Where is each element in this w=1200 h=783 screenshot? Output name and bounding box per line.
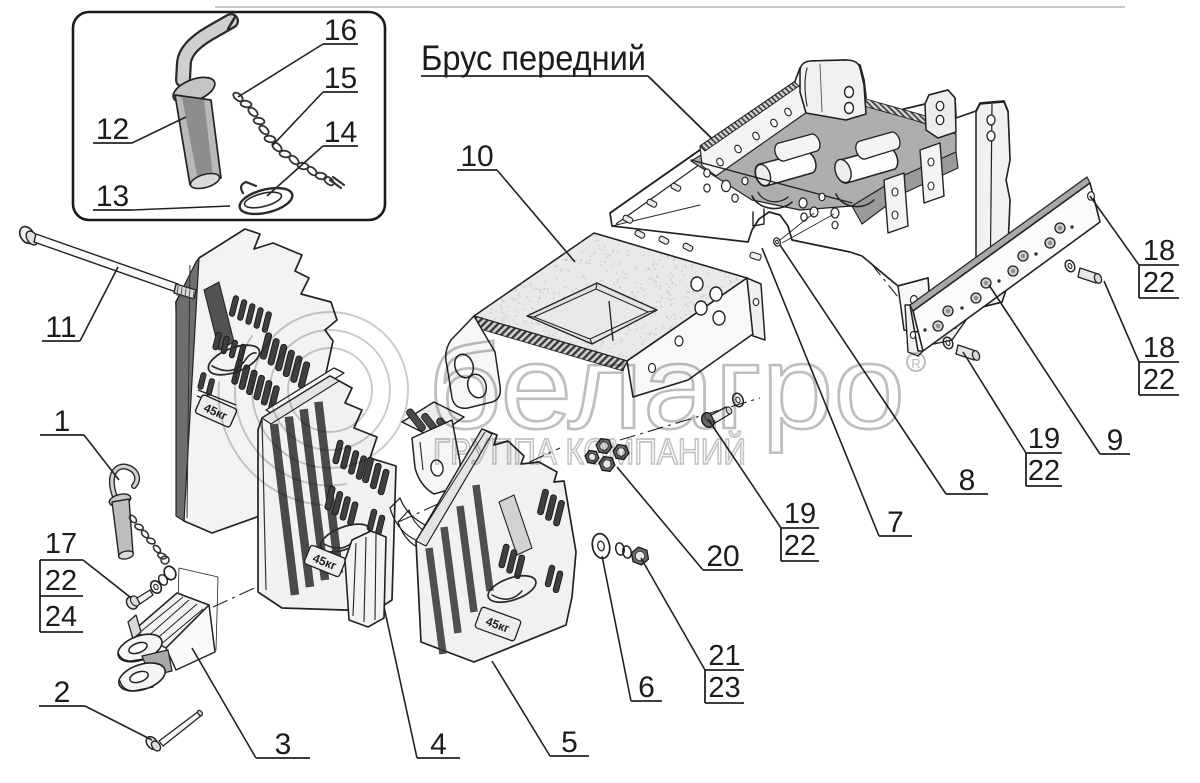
svg-text:23: 23 xyxy=(708,672,740,704)
svg-text:R: R xyxy=(911,356,920,371)
svg-text:19: 19 xyxy=(1028,423,1060,455)
svg-text:ГРУППА КОМПАНИЙ: ГРУППА КОМПАНИЙ xyxy=(433,430,746,472)
svg-text:3: 3 xyxy=(275,728,292,761)
svg-text:16: 16 xyxy=(324,14,357,47)
svg-text:Брус передний: Брус передний xyxy=(421,39,646,78)
svg-text:1: 1 xyxy=(54,405,71,438)
svg-text:15: 15 xyxy=(324,62,357,95)
svg-text:22: 22 xyxy=(784,530,816,562)
svg-text:22: 22 xyxy=(1028,455,1060,487)
svg-text:5: 5 xyxy=(561,726,578,759)
svg-text:14: 14 xyxy=(324,116,357,149)
svg-text:11: 11 xyxy=(45,311,76,344)
svg-text:6: 6 xyxy=(638,671,655,704)
svg-text:22: 22 xyxy=(45,565,77,597)
svg-text:2: 2 xyxy=(54,676,71,709)
svg-text:21: 21 xyxy=(708,640,740,672)
svg-text:12: 12 xyxy=(96,113,129,146)
svg-text:18: 18 xyxy=(1143,235,1175,267)
svg-text:13: 13 xyxy=(96,180,129,213)
svg-text:9: 9 xyxy=(1107,424,1124,457)
svg-text:7: 7 xyxy=(887,506,904,539)
svg-text:22: 22 xyxy=(1143,364,1175,396)
svg-text:8: 8 xyxy=(959,464,976,497)
svg-text:19: 19 xyxy=(784,498,816,530)
svg-text:24: 24 xyxy=(45,601,77,633)
svg-text:4: 4 xyxy=(430,728,447,761)
svg-text:22: 22 xyxy=(1143,267,1175,299)
svg-text:20: 20 xyxy=(706,540,739,573)
svg-text:10: 10 xyxy=(460,140,493,173)
svg-text:18: 18 xyxy=(1143,332,1175,364)
svg-text:17: 17 xyxy=(45,528,77,560)
